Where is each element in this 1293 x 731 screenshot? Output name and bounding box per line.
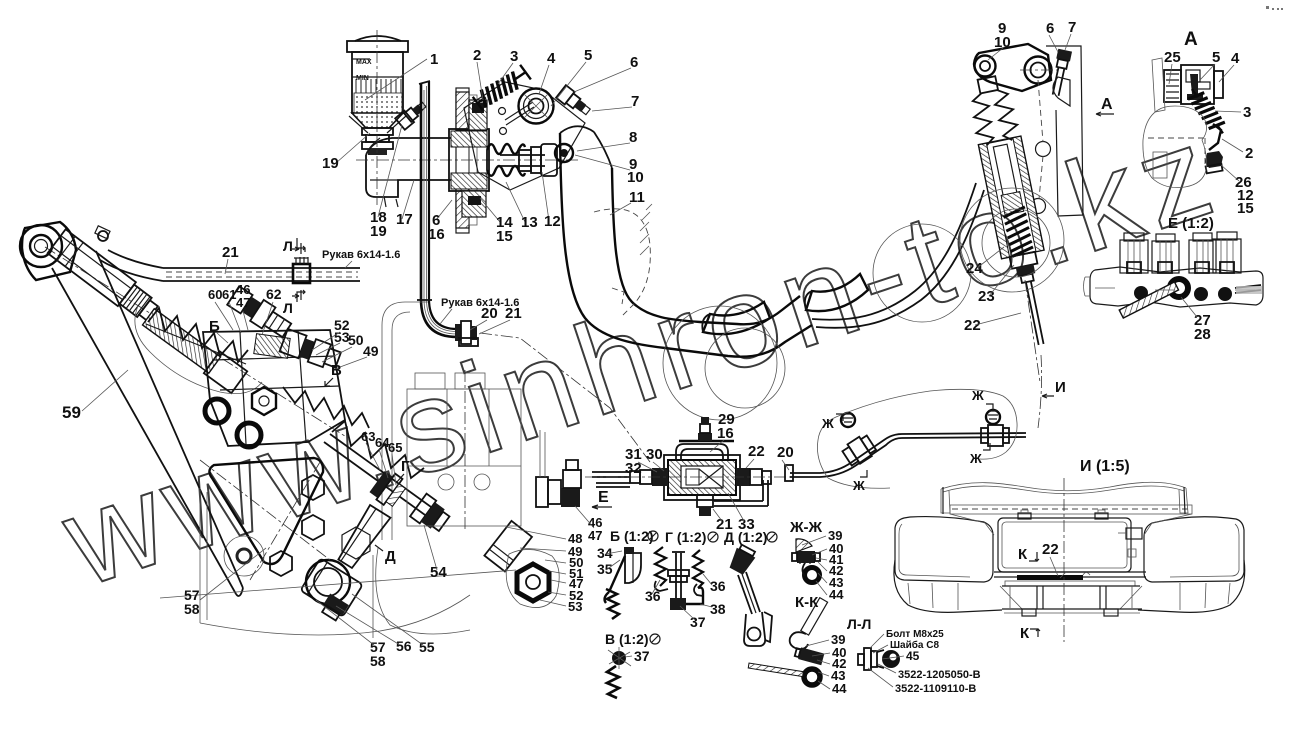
svg-text:3: 3 — [1243, 104, 1251, 121]
svg-text:22: 22 — [748, 443, 765, 460]
svg-text:47: 47 — [236, 295, 250, 310]
svg-text:17: 17 — [396, 211, 413, 228]
svg-text:А: А — [1184, 29, 1198, 50]
svg-text:Г: Г — [401, 458, 410, 475]
svg-text:65: 65 — [388, 440, 402, 455]
svg-text:22: 22 — [964, 317, 981, 334]
svg-text:16: 16 — [717, 425, 734, 442]
svg-text:10: 10 — [627, 169, 644, 186]
svg-text:MIN: MIN — [356, 75, 369, 82]
svg-text:58: 58 — [184, 601, 200, 617]
svg-text:Л: Л — [283, 300, 293, 316]
svg-text:25: 25 — [1164, 49, 1181, 66]
svg-text:37: 37 — [690, 614, 706, 630]
svg-text:3522-1109110-В: 3522-1109110-В — [895, 683, 976, 695]
svg-text:21: 21 — [505, 305, 522, 322]
svg-text:Л: Л — [283, 238, 293, 254]
svg-text:Е: Е — [598, 489, 609, 506]
svg-text:19: 19 — [370, 223, 387, 240]
svg-text:Болт М8х25: Болт М8х25 — [886, 629, 944, 640]
svg-text:4: 4 — [1231, 50, 1240, 67]
svg-text:Д: Д — [385, 548, 396, 565]
svg-text:38: 38 — [710, 601, 726, 617]
svg-text:7: 7 — [631, 93, 639, 110]
svg-text:55: 55 — [419, 639, 435, 655]
svg-text:6: 6 — [1046, 20, 1054, 37]
svg-text:44: 44 — [829, 587, 844, 602]
svg-text:44: 44 — [832, 681, 847, 696]
svg-text:Г (1:2): Г (1:2) — [665, 529, 706, 545]
svg-text:22: 22 — [1042, 541, 1059, 558]
svg-text:23: 23 — [978, 288, 995, 305]
svg-text:Ж: Ж — [969, 451, 982, 466]
svg-text:36: 36 — [645, 588, 661, 604]
svg-text:60: 60 — [208, 287, 222, 302]
svg-text:54: 54 — [430, 564, 447, 581]
svg-text:37: 37 — [634, 648, 650, 664]
svg-text:5: 5 — [1212, 49, 1220, 66]
svg-text:И (1:5): И (1:5) — [1080, 458, 1130, 475]
svg-text:Л-Л: Л-Л — [847, 616, 871, 632]
svg-text:Ж: Ж — [852, 478, 865, 493]
svg-text:В (1:2): В (1:2) — [605, 631, 649, 647]
svg-text:21: 21 — [222, 244, 239, 261]
svg-text:Е (1:2): Е (1:2) — [1168, 215, 1214, 232]
svg-text:Б: Б — [209, 318, 220, 335]
svg-text:12: 12 — [544, 213, 561, 230]
svg-text:2: 2 — [1245, 145, 1253, 162]
svg-text:В: В — [331, 362, 342, 379]
svg-text:1: 1 — [430, 51, 438, 68]
svg-text:11: 11 — [629, 189, 645, 206]
svg-text:MAX: MAX — [356, 59, 372, 66]
svg-text:30: 30 — [646, 446, 663, 463]
svg-text:3: 3 — [510, 48, 518, 65]
svg-text:56: 56 — [396, 638, 412, 654]
svg-text:К: К — [1018, 546, 1028, 563]
svg-text:36: 36 — [710, 578, 726, 594]
svg-text:24: 24 — [966, 260, 983, 277]
svg-text:6: 6 — [630, 54, 638, 71]
svg-text:Рукав 6х14-1.6: Рукав 6х14-1.6 — [322, 249, 400, 261]
svg-text:Ж: Ж — [971, 388, 984, 403]
svg-text:И: И — [1055, 379, 1066, 396]
svg-text:53: 53 — [568, 599, 582, 614]
svg-text:45: 45 — [906, 649, 920, 663]
svg-text:49: 49 — [363, 343, 379, 359]
svg-text:20: 20 — [777, 444, 794, 461]
svg-text:35: 35 — [597, 561, 613, 577]
svg-text:2: 2 — [473, 47, 481, 64]
svg-text:59: 59 — [62, 403, 81, 422]
svg-text:15: 15 — [496, 228, 513, 245]
svg-text:20: 20 — [481, 305, 498, 322]
svg-text:7: 7 — [1068, 19, 1076, 36]
svg-text:5: 5 — [584, 47, 592, 64]
svg-text:50: 50 — [348, 332, 364, 348]
svg-text:8: 8 — [629, 129, 637, 146]
svg-text:Ж: Ж — [821, 416, 834, 431]
svg-text:47: 47 — [588, 528, 602, 543]
svg-text:62: 62 — [266, 286, 282, 302]
svg-text:58: 58 — [370, 653, 386, 669]
svg-text:А: А — [1101, 96, 1113, 113]
svg-text:4: 4 — [547, 50, 556, 67]
svg-text:63: 63 — [361, 429, 375, 444]
svg-text:3522-1205050-В: 3522-1205050-В — [898, 669, 981, 681]
svg-text:16: 16 — [428, 226, 445, 243]
svg-text:Б (1:2): Б (1:2) — [610, 528, 654, 544]
svg-text:61: 61 — [222, 287, 236, 302]
svg-text:15: 15 — [1237, 200, 1254, 217]
svg-text:19: 19 — [322, 155, 339, 172]
svg-text:К-К: К-К — [795, 594, 819, 611]
svg-text:Ж-Ж: Ж-Ж — [789, 519, 823, 536]
svg-text:28: 28 — [1194, 326, 1211, 343]
svg-text:Д (1:2): Д (1:2) — [724, 529, 767, 545]
svg-text:К: К — [1020, 625, 1030, 642]
svg-text:13: 13 — [521, 214, 538, 231]
